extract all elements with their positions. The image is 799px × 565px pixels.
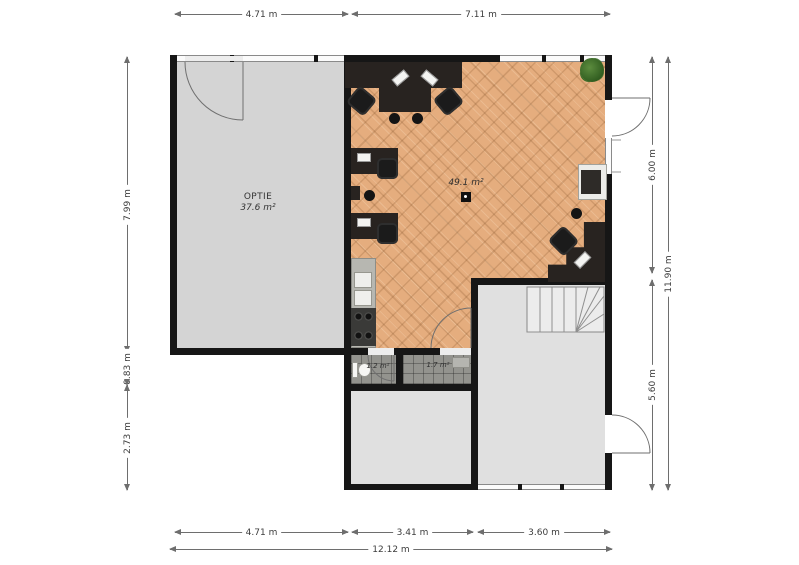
dim-label: 3.60 m xyxy=(524,528,564,538)
room-hall-area: 1.7 m² xyxy=(418,361,458,369)
stool-icon xyxy=(571,208,582,219)
dim-bottom-1: 4.71 m xyxy=(175,532,348,533)
plant-icon xyxy=(580,58,604,82)
dim-label: 5.60 m xyxy=(648,365,658,405)
dim-label: 4.71 m xyxy=(242,528,282,538)
window-sill-marks xyxy=(612,140,621,172)
dim-bottom-total: 12.12 m xyxy=(170,549,612,550)
dim-label: 7.11 m xyxy=(461,10,501,20)
dim-label: 4.71 m xyxy=(242,10,282,20)
wall-left xyxy=(170,55,177,355)
room-office-area: 49.1 m² xyxy=(440,178,492,188)
room-optie-name: OPTIE xyxy=(210,192,306,203)
floor-plan-canvas: OPTIE 37.6 m² 49.1 m² 1.2 m² 1.7 m² 4.71… xyxy=(0,0,799,565)
door-opening-right-bottom xyxy=(605,415,612,453)
dim-left-3: 2.73 m xyxy=(127,385,128,490)
window-tick xyxy=(518,484,522,490)
wall-right-upper xyxy=(605,55,612,100)
dim-top-2: 7.11 m xyxy=(352,14,610,15)
dim-label: 0.83 m xyxy=(123,349,133,389)
wall-stairs-left xyxy=(471,278,478,490)
dim-label: 11.90 m xyxy=(664,251,674,296)
dim-label: 6.00 m xyxy=(648,145,658,185)
door-opening-optie xyxy=(185,56,243,61)
printer-icon xyxy=(581,170,601,194)
window-bottom xyxy=(478,484,605,490)
floor-socket-icon xyxy=(461,192,471,202)
dim-left-2: 0.83 m xyxy=(127,352,128,385)
burner-icon xyxy=(364,331,373,340)
door-opening-right-top xyxy=(605,100,612,138)
room-stairs-floor xyxy=(478,285,605,484)
wall-top-center xyxy=(344,55,500,62)
dim-right-1: 6.00 m xyxy=(652,57,653,273)
dim-label: 3.41 m xyxy=(393,528,433,538)
burner-icon xyxy=(354,331,363,340)
sink-icon xyxy=(354,272,372,288)
stove-icon xyxy=(351,308,376,346)
desk-top-extension xyxy=(379,88,431,112)
window-tick xyxy=(560,484,564,490)
dim-top-1: 4.71 m xyxy=(175,14,348,15)
burner-icon xyxy=(354,312,363,321)
dim-label: 7.99 m xyxy=(123,185,133,225)
room-optie-area: 37.6 m² xyxy=(210,203,306,214)
room-optie-label: OPTIE 37.6 m² xyxy=(210,192,306,215)
wall-mid-vertical xyxy=(344,55,351,490)
door-opening-toilet xyxy=(368,348,394,355)
window-tick xyxy=(314,55,318,62)
room-bottom-floor xyxy=(351,391,471,484)
door-opening-hall xyxy=(440,348,471,355)
wall-right-middle xyxy=(605,174,612,415)
dim-label: 2.73 m xyxy=(123,418,133,458)
wall-corner-bottom-right xyxy=(605,484,612,490)
laptop-icon xyxy=(357,153,371,162)
stool-icon xyxy=(412,113,423,124)
dim-label: 12.12 m xyxy=(368,545,413,555)
dim-bottom-3: 3.60 m xyxy=(478,532,610,533)
stool-icon xyxy=(364,190,375,201)
window-tick xyxy=(542,55,546,62)
burner-icon xyxy=(364,312,373,321)
wall-optie-bottom xyxy=(170,348,351,355)
room-toilet-area: 1.2 m² xyxy=(358,362,398,370)
office-chair-icon xyxy=(377,223,398,244)
stool-icon xyxy=(389,113,400,124)
dim-right-total: 11.90 m xyxy=(668,57,669,490)
wall-bottomroom-bottom xyxy=(344,484,478,490)
office-chair-icon xyxy=(377,158,398,179)
sink-icon xyxy=(354,290,372,306)
dim-bottom-2: 3.41 m xyxy=(352,532,473,533)
wall-strip-bottom xyxy=(344,384,478,391)
laptop-icon xyxy=(357,218,371,227)
dim-left-1: 7.99 m xyxy=(127,57,128,352)
dim-right-2: 5.60 m xyxy=(652,280,653,490)
wall-equipment-box xyxy=(351,186,360,200)
